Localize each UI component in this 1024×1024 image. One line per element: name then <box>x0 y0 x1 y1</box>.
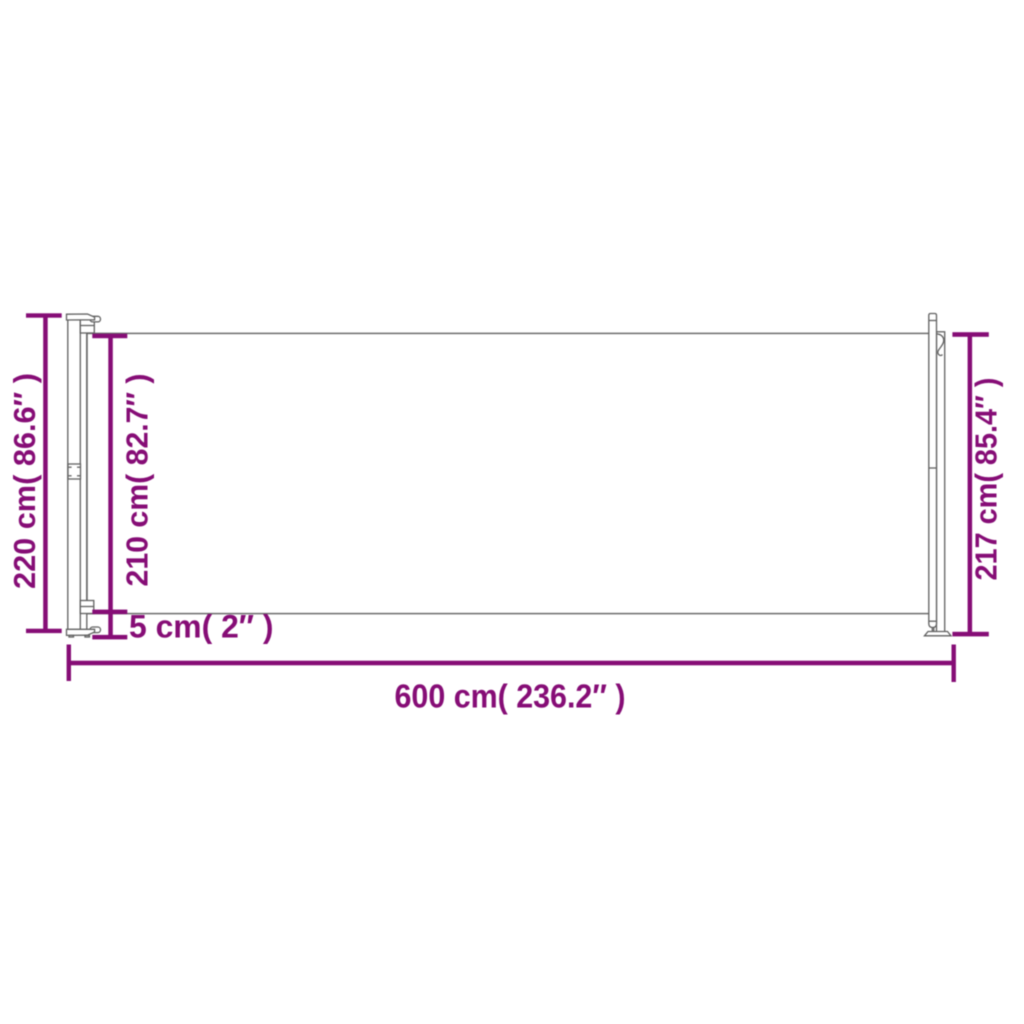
svg-text:5 cm( 2″ ): 5 cm( 2″ ) <box>129 608 274 644</box>
svg-text:210 cm( 82.7″ ): 210 cm( 82.7″ ) <box>120 374 155 587</box>
svg-text:217 cm( 85.4″ ): 217 cm( 85.4″ ) <box>969 378 1004 581</box>
svg-text:220 cm( 86.6″ ): 220 cm( 86.6″ ) <box>7 373 42 589</box>
svg-text:600 cm( 236.2″ ): 600 cm( 236.2″ ) <box>395 678 626 715</box>
